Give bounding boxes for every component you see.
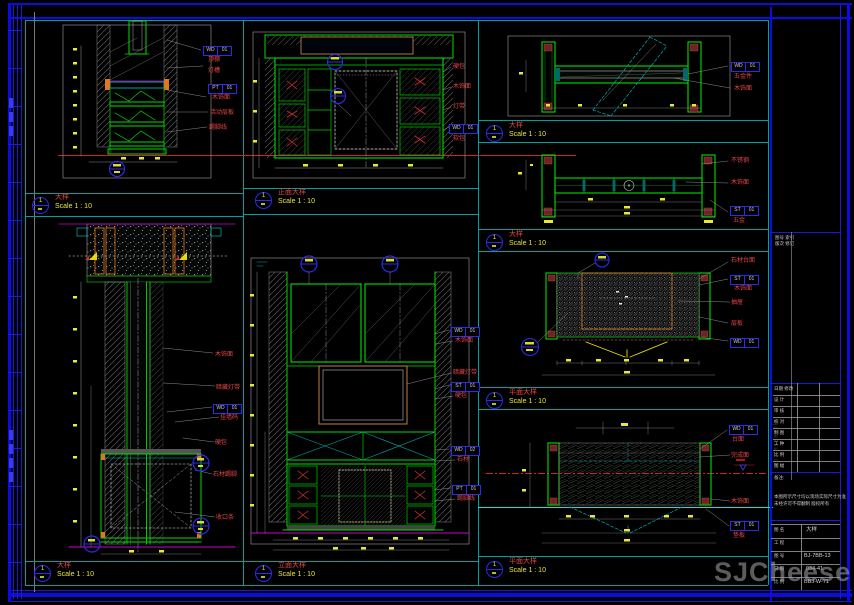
drawing-title: 正面大样 xyxy=(278,189,306,197)
drawing-scale: Scale 1 : 10 xyxy=(55,203,92,211)
finish-label: 台面 xyxy=(732,437,744,443)
watermark-vertical: sjcheese.com xyxy=(772,420,778,595)
finish-label: 垫板 xyxy=(733,533,745,539)
drawing-2-canvas xyxy=(25,216,243,561)
finish-label: 挂墙码 xyxy=(220,415,238,421)
finish-tag: WD01 xyxy=(730,338,759,348)
titleblock-header: 图号 索引 xyxy=(775,235,794,240)
drawing-title: 平面大样 xyxy=(509,558,537,566)
drawing-4-canvas xyxy=(243,214,478,561)
finish-label: 灯带 xyxy=(453,104,465,110)
finish-label: 层板 xyxy=(731,321,743,327)
detail-drawing-4: WD01 木饰面 暗藏灯带 ST01 硬包 WD02 石材 PT01 踢脚线 xyxy=(243,214,478,561)
finish-label: 木饰面 xyxy=(453,84,471,90)
detail-callout-icon: 1 xyxy=(32,197,49,214)
detail-drawing-3: 硬包 木饰面 灯带 WD01 软包 xyxy=(243,20,478,188)
drawing-8-canvas xyxy=(478,409,768,556)
finish-tag: WD01 xyxy=(203,46,232,56)
finish-tag: PT01 xyxy=(208,84,237,94)
drawing-7-canvas xyxy=(478,251,768,387)
detail-drawing-5: WD01 五金件 木饰面 xyxy=(478,20,768,120)
finish-label: 顶棚 xyxy=(208,57,220,63)
titleblock-desc: 未经许可不得翻制 版权所有 xyxy=(774,501,829,506)
finish-label: 抽屉 xyxy=(731,300,743,306)
finish-label: 完成面 xyxy=(731,453,749,459)
detail-drawing-7: 石材台面 ST01 木饰面 抽屉 层板 WD01 xyxy=(478,251,768,387)
finish-label: 硬包 xyxy=(215,440,227,446)
finish-tag: ST01 xyxy=(451,382,480,392)
finish-label: 木饰面 xyxy=(215,352,233,358)
drawing-title: 平面大样 xyxy=(509,389,537,397)
finish-tag: WD02 xyxy=(451,446,480,456)
titleblock-desc: 本图所示尺寸均以现场实际尺寸为准 xyxy=(774,494,846,499)
finish-tag: ST01 xyxy=(730,206,759,216)
detail-callout-icon: 1 xyxy=(486,392,503,409)
finish-label: 五金件 xyxy=(734,74,752,80)
drawing-6-canvas xyxy=(478,142,768,229)
cad-sheet: WD01 顶棚 灯槽 PT01 木饰面 活动层板 踢脚线 xyxy=(0,0,854,605)
finish-tag: ST01 xyxy=(730,275,759,285)
drawing-scale: Scale 1 : 10 xyxy=(278,571,315,579)
finish-tag: WD01 xyxy=(731,62,760,72)
finish-tag: WD01 xyxy=(449,124,478,134)
finish-tag: WD01 xyxy=(213,404,242,414)
drawing-title: 大样 xyxy=(509,231,523,239)
detail-callout-icon: 1 xyxy=(255,192,272,209)
finish-label: 踢脚线 xyxy=(457,496,475,502)
drawing-title: 大样 xyxy=(509,122,523,130)
finish-label: 五金 xyxy=(733,218,745,224)
drawing-scale: Scale 1 : 10 xyxy=(509,131,546,139)
finish-label: 硬包 xyxy=(453,64,465,70)
finish-tag: PT01 xyxy=(452,485,481,495)
finish-label: 石材 xyxy=(457,457,469,463)
drawing-scale: Scale 1 : 10 xyxy=(509,398,546,406)
finish-label: 石材台面 xyxy=(731,258,755,264)
detail-callout-icon: 1 xyxy=(255,565,272,582)
drawing-5-canvas xyxy=(478,20,768,120)
drawing-scale: Scale 1 : 10 xyxy=(57,571,94,579)
finish-tag: WD01 xyxy=(729,425,758,435)
finish-label: 暗藏灯带 xyxy=(453,370,477,376)
titleblock-header: 版次 修订 xyxy=(775,241,794,246)
drawing-title: 大样 xyxy=(57,562,71,570)
finish-label: 木饰面 xyxy=(731,499,749,505)
detail-callout-icon: 1 xyxy=(486,125,503,142)
finish-label: 木饰面 xyxy=(455,338,473,344)
detail-callout-icon: 1 xyxy=(486,234,503,251)
finish-label: 木饰面 xyxy=(734,86,752,92)
drawing-scale: Scale 1 : 10 xyxy=(509,567,546,575)
finish-label: 木饰面 xyxy=(212,95,230,101)
detail-drawing-1: WD01 顶棚 灯槽 PT01 木饰面 活动层板 踢脚线 xyxy=(25,20,243,193)
finish-label: 木饰面 xyxy=(731,180,749,186)
finish-tag: ST01 xyxy=(730,521,759,531)
detail-callout-icon: 1 xyxy=(486,561,503,578)
drawing-scale: Scale 1 : 10 xyxy=(278,198,315,206)
finish-label: 硬包 xyxy=(455,393,467,399)
finish-label: 收口条 xyxy=(216,515,234,521)
watermark: SJCheese xyxy=(714,557,851,588)
drawing-scale: Scale 1 : 10 xyxy=(509,240,546,248)
drawing-title: 大样 xyxy=(55,194,69,202)
detail-drawing-2: 木饰面 暗藏灯带 WD01 挂墙码 硬包 石材踢脚 收口条 xyxy=(25,216,243,561)
finish-label: 石材踢脚 xyxy=(213,472,237,478)
finish-label: 软包 xyxy=(453,136,465,142)
finish-tag: WD01 xyxy=(451,327,480,337)
detail-drawing-8: WD01 台面 完成面 木饰面 ST01 垫板 xyxy=(478,409,768,556)
finish-label: 不锈钢 xyxy=(731,158,749,164)
finish-label: 灯槽 xyxy=(208,68,220,74)
finish-label: 暗藏灯带 xyxy=(216,385,240,391)
detail-callout-icon: 1 xyxy=(34,565,51,582)
finish-label: 木饰面 xyxy=(734,286,752,292)
drawing-3-canvas xyxy=(243,20,478,188)
finish-label: 活动层板 xyxy=(210,110,234,116)
finish-label: 踢脚线 xyxy=(209,125,227,131)
detail-drawing-6: 不锈钢 木饰面 ST01 五金 xyxy=(478,142,768,229)
drawing-title: 立面大样 xyxy=(278,562,306,570)
